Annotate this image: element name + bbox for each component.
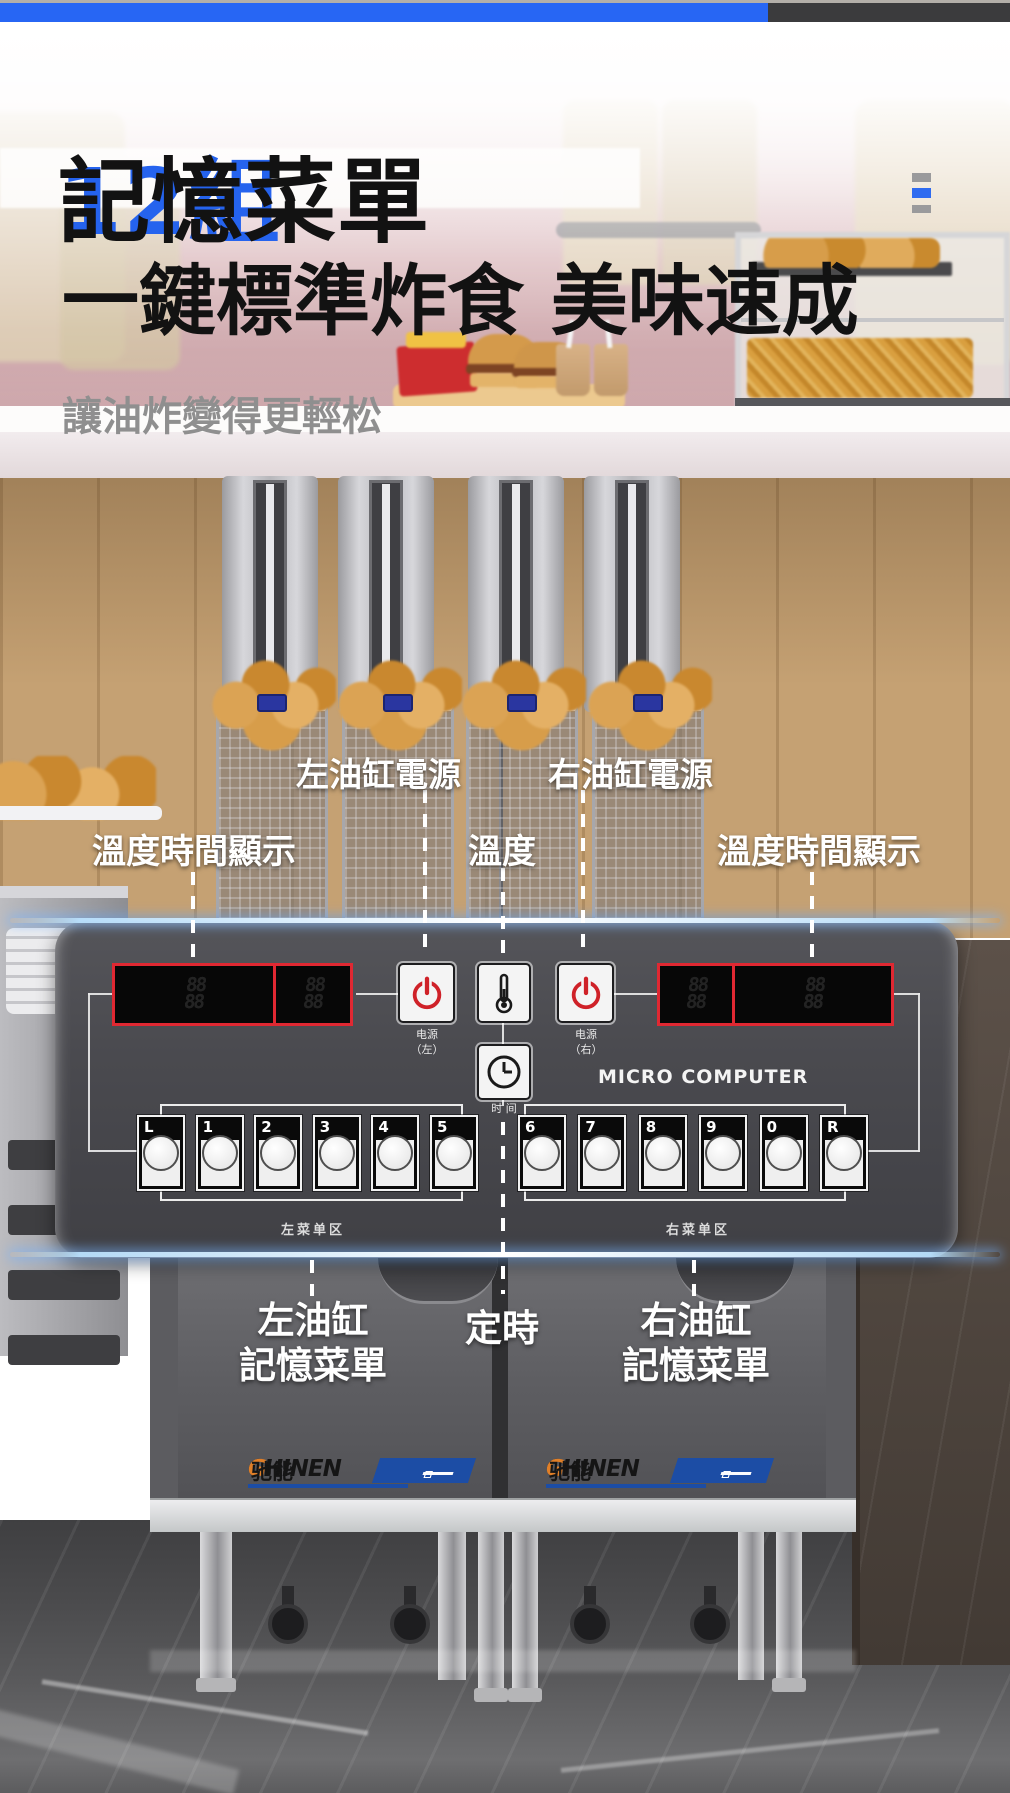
callout-dash-timer (501, 1122, 505, 1294)
deco-bar-bottom (912, 205, 931, 213)
memory-button-7: 7 (578, 1115, 626, 1191)
callout-dash-power-left (423, 790, 427, 958)
basket-clip-2 (383, 694, 413, 712)
leg-foot-4 (508, 1688, 542, 1702)
basket-clip-1 (257, 694, 287, 712)
led-display-left-sub: 88 88 88 88 (273, 963, 353, 1026)
caster-2-wheel (390, 1604, 430, 1644)
memory-button-1: 1 (196, 1115, 244, 1191)
circuit-line (88, 993, 90, 1152)
cabinet-gap (492, 1258, 508, 1498)
callout-power-right: 右油缸電源 (548, 748, 713, 796)
clock-icon (484, 1052, 524, 1092)
circuit-line (918, 993, 920, 1152)
zone-label-right: 右菜单区 (638, 1219, 758, 1238)
circuit-line (88, 1150, 140, 1152)
led-digits: 88 88 (801, 977, 824, 1012)
page-tagline: 讓油炸變得更輕松 (62, 384, 382, 442)
leg-foot-1 (196, 1678, 236, 1692)
left-tray-lip (0, 806, 162, 820)
circuit-line (356, 993, 400, 995)
trolley-slot-3 (8, 1270, 120, 1300)
power-icon (408, 974, 446, 1012)
cup-1 (556, 344, 590, 396)
micro-computer-text: MICRO COMPUTER (598, 1066, 808, 1088)
callout-dash-menu-left (310, 1260, 314, 1296)
callout-timer: 定時 (465, 1298, 539, 1352)
timer-button (477, 1044, 531, 1100)
floor-reflection (150, 1650, 856, 1672)
cabinet-right-side (826, 1258, 856, 1532)
trolley-slot-4 (8, 1335, 120, 1365)
circuit-line (612, 993, 659, 995)
memory-button-8: 8 (639, 1115, 687, 1191)
deco-bar-top (912, 173, 931, 182)
memory-buttons-left: L 1 2 3 4 5 (137, 1115, 478, 1191)
caster-4-wheel (690, 1604, 730, 1644)
callout-dash-display-right (810, 872, 814, 958)
promo-page: 12組記憶菜單 一鍵標準炸食 美味速成 讓油炸變得更輕松 (0, 0, 1010, 1793)
memory-button-R: R (820, 1115, 868, 1191)
circuit-line (88, 993, 114, 995)
memory-button-5: 5 (430, 1115, 478, 1191)
callout-dash-menu-right (692, 1260, 696, 1296)
thermometer-icon (487, 971, 521, 1015)
memory-button-3: 3 (313, 1115, 361, 1191)
circuit-line (502, 1022, 504, 1046)
brand-name-cn: 驰能 (251, 1456, 293, 1486)
callout-power-left: 左油缸電源 (296, 748, 461, 796)
panel-glow-bottom (10, 1252, 1000, 1257)
callout-display-right: 溫度時間顯示 (717, 824, 921, 873)
brand-logo-right: CHINENG驰能 (546, 1456, 772, 1492)
callout-dash-temperature (501, 868, 505, 958)
callout-temperature: 溫度 (468, 824, 536, 873)
trolley-top-lip (0, 886, 128, 898)
brand-logo-left: CHINENG驰能 (248, 1456, 474, 1492)
memory-button-9: 9 (699, 1115, 747, 1191)
memory-button-2: 2 (254, 1115, 302, 1191)
brand-underline (248, 1484, 408, 1488)
led-digits: 88 88 (684, 977, 707, 1012)
power-icon (567, 974, 605, 1012)
memory-button-6: 6 (518, 1115, 566, 1191)
callout-dash-power-right (581, 790, 585, 958)
cup-2 (594, 344, 628, 396)
deco-bar-blue (912, 188, 931, 198)
zone-label-left: 左菜单区 (253, 1219, 373, 1238)
brand-underline (546, 1484, 706, 1488)
led-display-left-main: 88 88 88 88 88 88 88 88 (112, 963, 276, 1026)
top-bar-blue (0, 3, 768, 22)
cabinet-left-side (150, 1258, 178, 1532)
power-left-button (398, 963, 455, 1023)
led-digits: 88 88 (182, 977, 205, 1012)
leg-foot-3 (474, 1688, 508, 1702)
caster-3-wheel (570, 1604, 610, 1644)
callout-menu-right: 右油缸 記憶菜單 (596, 1298, 796, 1388)
memory-button-4: 4 (371, 1115, 419, 1191)
led-display-right: 88 88 88 88 88 88 88 88 88 88 88 88 (657, 963, 894, 1026)
power-right-label: 电源 （右） (555, 1028, 617, 1058)
temperature-button (477, 963, 531, 1023)
power-right-button (557, 963, 614, 1023)
memory-button-L: L (137, 1115, 185, 1191)
callout-menu-left: 左油缸 記憶菜單 (213, 1298, 413, 1388)
brand-name-cn: 驰能 (549, 1456, 591, 1486)
led-display-right-main: 88 88 88 88 88 88 88 88 (732, 963, 894, 1026)
panel-glow-top (10, 918, 1000, 923)
memory-button-0: 0 (760, 1115, 808, 1191)
page-subtitle: 一鍵標準炸食 美味速成 (62, 240, 859, 351)
led-digits: 88 88 (301, 977, 324, 1012)
caster-1-wheel (268, 1604, 308, 1644)
memory-buttons-right: 6 7 8 9 0 R (518, 1115, 868, 1191)
callout-display-left: 溫度時間顯示 (92, 824, 296, 873)
led-display-right-sub: 88 88 88 88 (657, 963, 735, 1026)
leg-foot-6 (772, 1678, 806, 1692)
circuit-line (892, 993, 920, 995)
led-display-left: 88 88 88 88 88 88 88 88 88 88 88 88 (112, 963, 353, 1026)
brand-ribbon (670, 1458, 774, 1483)
cabinet-light-band (150, 1498, 856, 1532)
basket-clip-4 (633, 694, 663, 712)
basket-clip-3 (507, 694, 537, 712)
brand-ribbon (372, 1458, 476, 1483)
power-left-label: 电源 （左） (396, 1028, 458, 1058)
callout-dash-display-left (191, 872, 195, 958)
top-bar-dark (768, 3, 1010, 22)
